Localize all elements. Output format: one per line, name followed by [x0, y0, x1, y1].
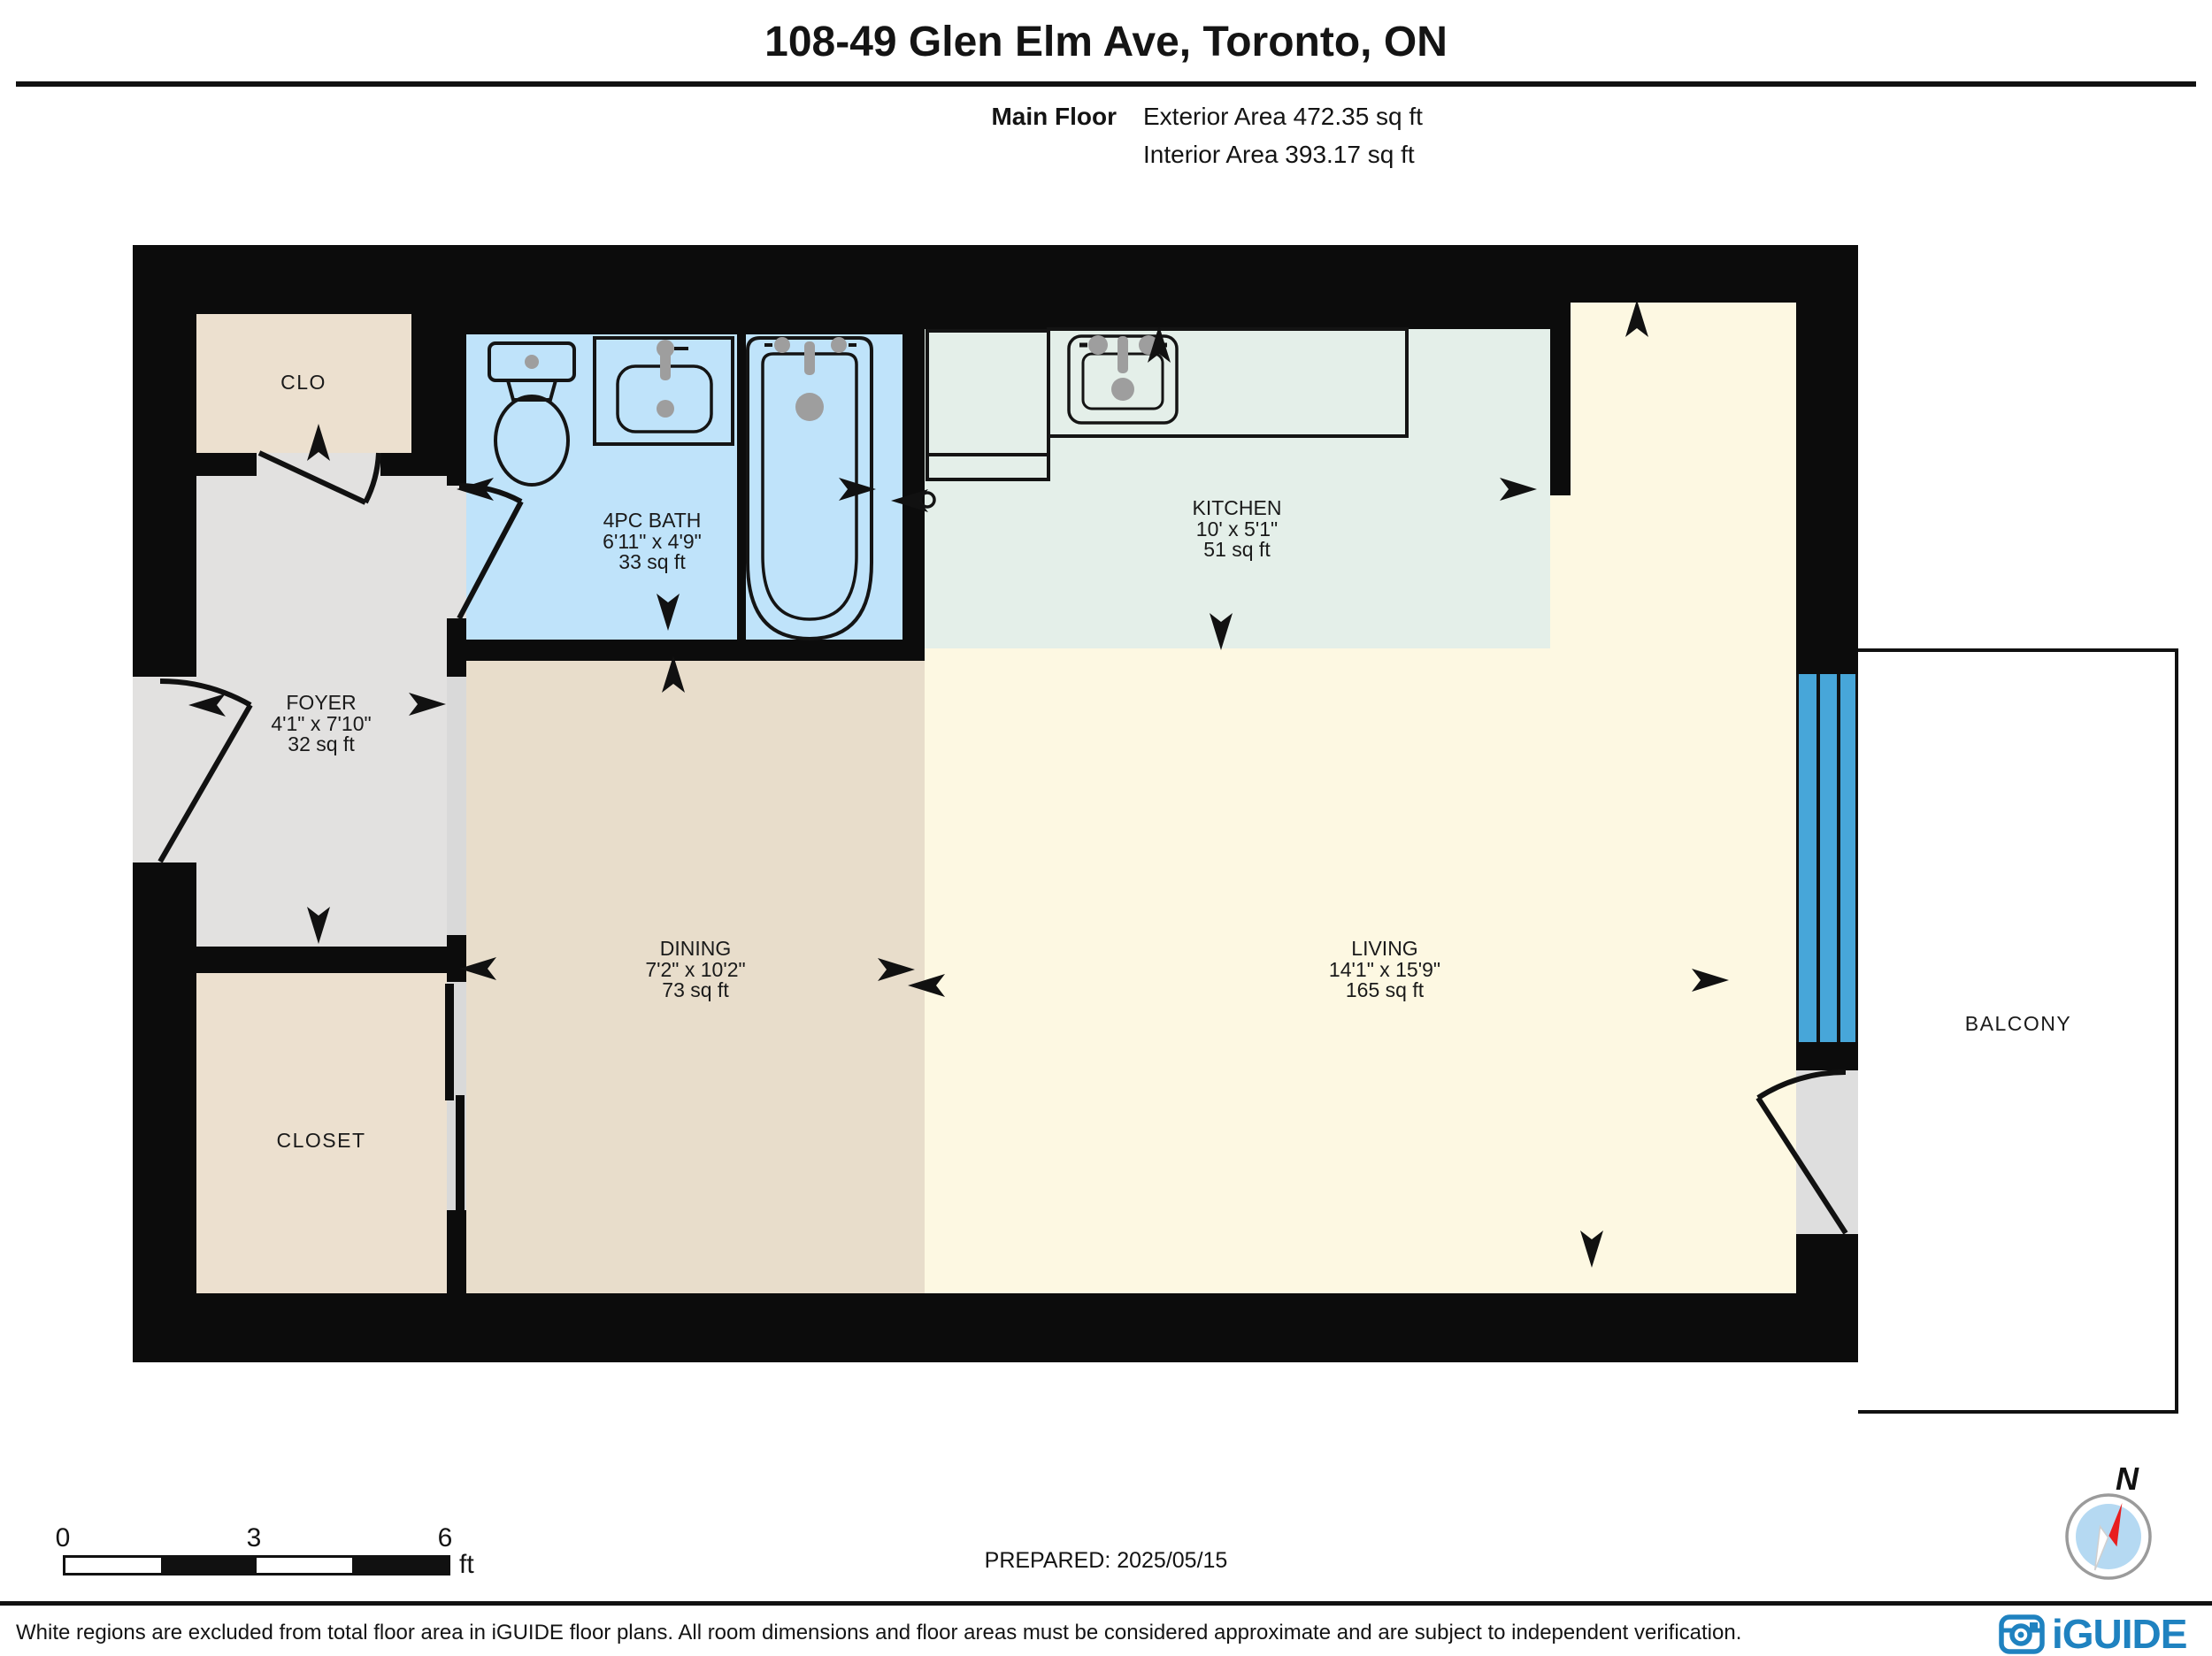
bath-door-opening	[447, 486, 466, 618]
living-alcove-floor-2	[1550, 495, 1796, 648]
living-alcove-floor	[1571, 303, 1796, 495]
exterior-area: Exterior Area 472.35 sq ft	[1143, 103, 1423, 131]
room-label-bath: 4PC BATH6'11" x 4'9"33 sq ft	[603, 510, 702, 573]
footer-divider	[0, 1601, 2212, 1606]
closet-sliding-door-panel	[456, 1095, 465, 1212]
iguide-logo: iGUIDE	[1998, 1610, 2186, 1656]
foyer-dining-divider	[447, 677, 466, 935]
compass-north-label: N	[2116, 1460, 2139, 1497]
room-label-dining: DINING7'2" x 10'2"73 sq ft	[645, 939, 745, 1001]
footer-disclaimer: White regions are excluded from total fl…	[16, 1621, 1741, 1645]
window-mullion	[1816, 674, 1820, 1042]
floor-name: Main Floor	[796, 103, 1117, 131]
room-label-foyer: FOYER4'1" x 7'10"32 sq ft	[271, 693, 371, 755]
balcony-window	[1796, 674, 1858, 1042]
header-divider	[16, 81, 2196, 87]
room-label-clo: CLO	[280, 372, 326, 394]
clo-door-opening	[257, 453, 380, 476]
entry-door-recess	[133, 677, 196, 862]
page-title: 108-49 Glen Elm Ave, Toronto, ON	[0, 18, 2212, 66]
room-label-living: LIVING14'1" x 15'9"165 sq ft	[1329, 939, 1440, 1001]
floor-plan-page: 108-49 Glen Elm Ave, Toronto, ON Main Fl…	[0, 0, 2212, 1656]
balcony-door-recess	[1796, 1070, 1858, 1234]
room-label-balcony: BALCONY	[1965, 1014, 2071, 1035]
window-mullion	[1837, 674, 1840, 1042]
iguide-logo-text: iGUIDE	[2052, 1610, 2186, 1656]
closet-sliding-door-panel	[445, 984, 454, 1100]
floor-plan	[133, 245, 1858, 1362]
room-bath-floor	[466, 334, 902, 640]
room-label-closet: CLOSET	[276, 1131, 365, 1152]
prepared-date: PREPARED: 2025/05/15	[0, 1548, 2212, 1574]
room-label-kitchen: KITCHEN10' x 5'1"51 sq ft	[1193, 498, 1282, 561]
interior-area: Interior Area 393.17 sq ft	[1143, 141, 1415, 169]
room-kitchen-floor	[925, 329, 1550, 648]
iguide-logo-icon	[1998, 1613, 2046, 1655]
